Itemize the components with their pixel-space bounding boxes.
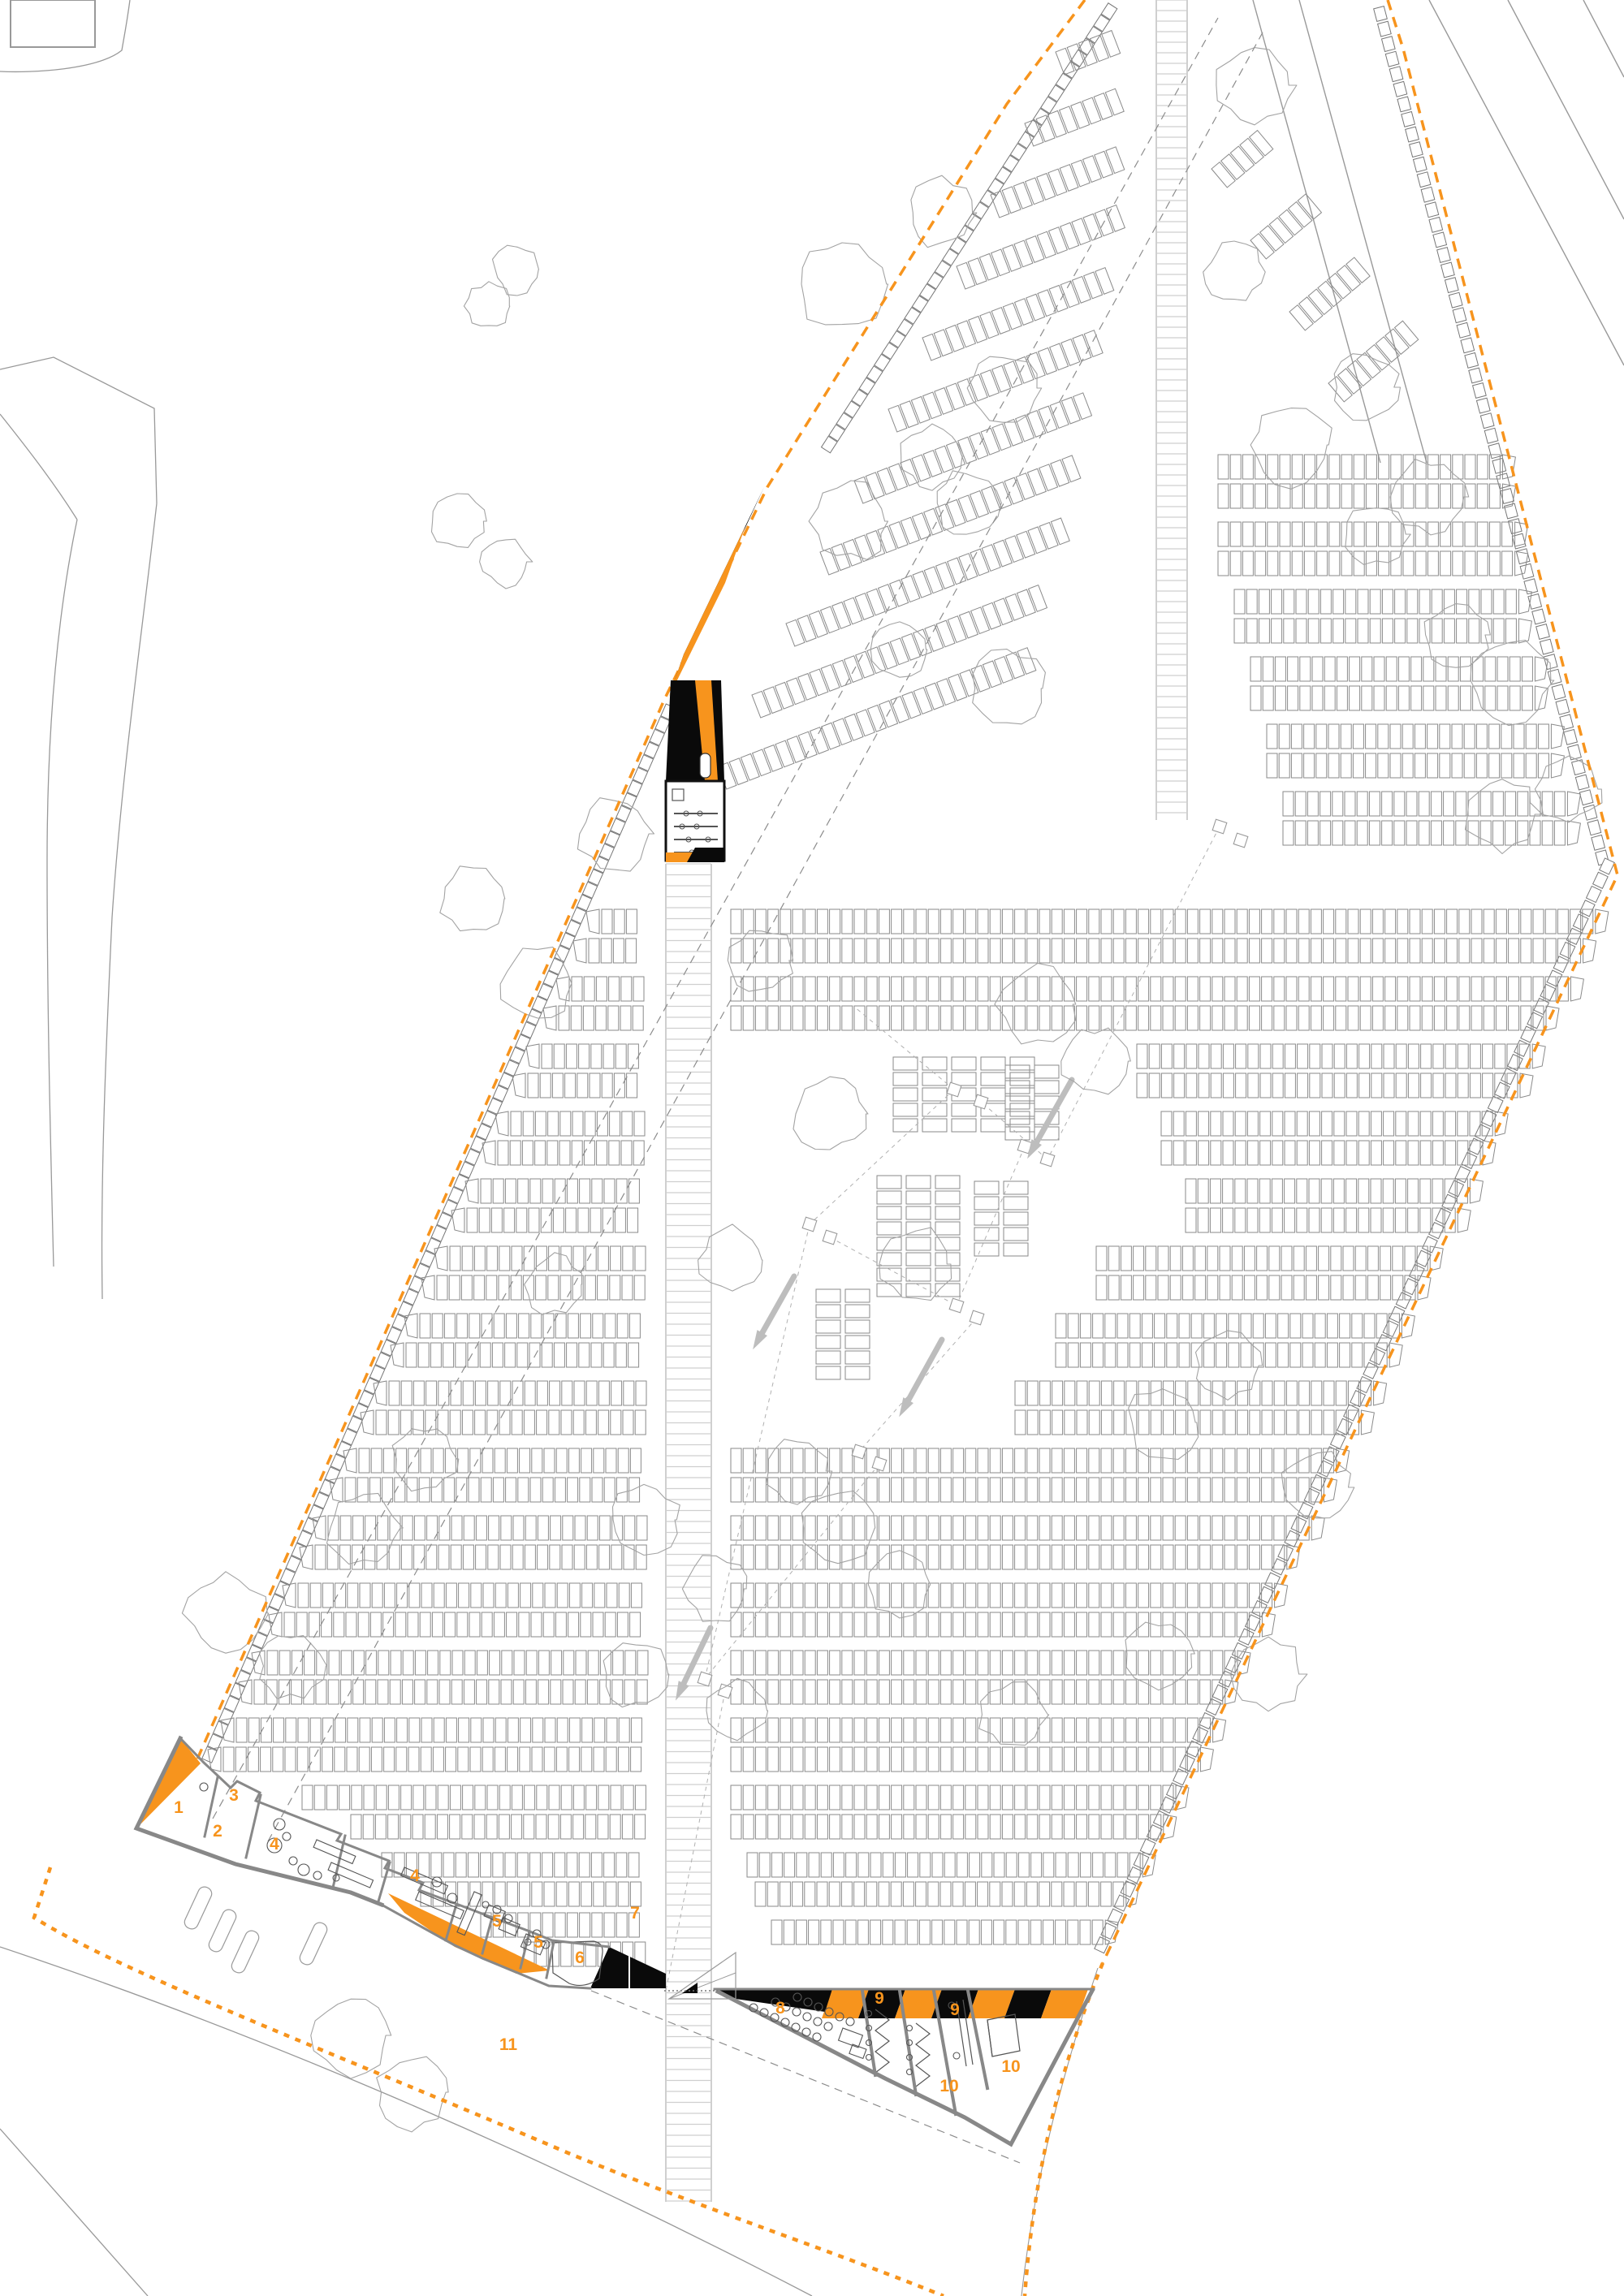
parking-stall [1397,1006,1408,1030]
parking-stall [890,580,909,606]
parking-stall [504,1208,515,1232]
parking-stall [1101,1785,1112,1810]
parking-stall [631,1718,641,1742]
parking-stall [1320,589,1331,614]
parking-stall [817,1651,827,1675]
parking-stall [830,1680,840,1704]
parking-stall [842,1612,853,1637]
parking-stall [1015,1448,1026,1473]
parking-stall [1138,1410,1149,1435]
parking-stall [1298,939,1309,963]
parking-stall [1151,1747,1161,1772]
parking-stall [528,1073,538,1098]
parking-stall [1415,753,1425,778]
parking-stall [1077,1680,1087,1704]
parking-stall [1311,1381,1322,1405]
parking-stall [463,1545,473,1569]
parking-stall [567,1343,577,1367]
parking-stall [1391,522,1402,546]
parking-stall [555,1478,565,1502]
edge-stall [1433,232,1447,248]
parking-stall [879,1516,889,1540]
parking-stall [965,909,976,934]
edge-stall [1593,872,1609,888]
parking-stall [598,1275,608,1300]
parking-stall [1272,1044,1283,1068]
parking-stall [525,1381,535,1405]
path-link [957,1146,1025,1306]
parking-stall [1249,1545,1259,1569]
parking-stall [603,1343,614,1367]
parking-stall [755,1747,766,1772]
parking-stall [1422,939,1432,963]
parking-stall [1017,648,1036,675]
parking-stall [1039,1815,1050,1839]
parking-stall [1250,657,1261,681]
parking-stall [1283,792,1294,816]
parking-stall [1522,657,1532,681]
tree [767,1439,832,1504]
road-curve-nw [0,0,130,71]
parking-stall [1533,909,1544,934]
parking-stall [1480,792,1491,816]
parking-stall [965,1747,976,1772]
parking-stall [982,1853,992,1877]
parking-stall [780,909,791,934]
parking-stall [1453,484,1463,508]
parking-stall [1129,1343,1140,1367]
tree [1345,508,1410,565]
parking-stall [1077,1516,1087,1540]
parking-stall [314,1785,325,1810]
parking-stall [957,321,976,347]
parking-stall [537,1785,547,1810]
parking-stall [775,682,793,709]
parking-stall [1175,1516,1186,1540]
parking-stall [920,1853,931,1877]
parking-stall [579,1853,590,1877]
parking-stall [1322,1044,1332,1068]
parking-stall [1027,977,1038,1001]
parking-stall [284,1612,295,1637]
parking-stall [916,1478,926,1502]
parking-stall [953,1815,964,1839]
parking-stall [1348,939,1358,963]
parking-stall [634,1275,645,1300]
parking-stall [1064,1651,1074,1675]
parking-stall [419,1853,430,1877]
parking-stall [1050,343,1069,370]
compact-stall [935,1206,960,1219]
parking-stall [340,1680,351,1704]
parking-stall [1005,536,1024,563]
parking-stall [469,1314,480,1338]
parking-stall [854,1006,865,1030]
parking-stall [1432,1179,1443,1203]
tree [793,1077,868,1150]
room-number-label: 10 [939,2077,958,2095]
parking-row [586,909,637,934]
parking-stall [1163,1583,1173,1608]
edge-stall [1568,744,1582,760]
parking-stall [498,1141,508,1165]
parking-stall [1237,1583,1247,1608]
parking-stall [346,1612,356,1637]
parking-stall [858,1853,869,1877]
parking-stall [414,1545,425,1569]
parking-stall [1545,939,1556,963]
parking-stall [610,1111,620,1136]
parking-stall [512,1545,523,1569]
parking-stall [805,1651,815,1675]
parking-stall [1334,1073,1345,1098]
tree [698,1224,762,1291]
parking-row [854,393,1092,503]
parking-stall [1274,1516,1285,1540]
parking-stall [809,1853,819,1877]
parking-stall [866,1882,877,1906]
parking-stall [1434,1006,1445,1030]
parking-stall [1224,1545,1235,1569]
compact-stall [877,1176,901,1189]
parking-stall [1076,1882,1086,1906]
parking-stall [1212,1381,1223,1405]
parking-stall [1089,939,1099,963]
parking-stall [1262,1448,1272,1473]
edge-stall [1410,142,1423,158]
parking-stall [1485,686,1496,710]
parking-stall [1212,939,1223,963]
parking-stall [598,1815,608,1839]
parking-row [731,1815,1177,1839]
parking-stall [1006,652,1025,679]
parking-stall [1003,245,1021,272]
compact-stall [952,1057,976,1070]
building-services-pavilion-furniture [907,2026,913,2031]
parking-stall [833,1920,844,1944]
parking-stall [616,1913,627,1937]
parking-stall [1207,1275,1218,1300]
parking-stall [1095,268,1114,295]
parking-stall [537,1381,547,1405]
parking-stall [1464,753,1475,778]
parking-stall [585,1275,595,1300]
parking-row [1137,1073,1533,1098]
parking-stall [1224,1478,1235,1502]
parking-stall [1052,977,1062,1001]
parking-stall [1470,1073,1480,1098]
parking-stall [1304,551,1315,576]
parking-stall [637,1680,647,1704]
parking-stall [1187,1478,1198,1502]
parking-stall [533,1583,543,1608]
parking-stall [953,1680,964,1704]
parking-row [269,1612,641,1637]
parking-row [1250,194,1321,259]
parking-stall [1320,792,1331,816]
parking-stall [1366,753,1376,778]
parking-stall [631,1583,641,1608]
parking-stall [1028,527,1047,554]
parking-stall [400,1815,411,1839]
tree [1390,460,1469,535]
edge-stall [1350,1391,1366,1407]
parking-stall [1027,1583,1038,1608]
parking-stall [551,1680,561,1704]
tree [432,494,487,547]
parking-stall [1138,1718,1149,1742]
parking-stall [833,1853,844,1877]
parking-stall [1436,686,1446,710]
parking-stall [1302,1314,1313,1338]
parking-stall [1274,939,1285,963]
compact-stall [1005,1096,1030,1109]
parking-stall [348,1583,358,1608]
parking-stall [928,1747,939,1772]
room-labels: 1234455678999101011 [174,1786,1021,2095]
parking-stall [345,1478,356,1502]
parking-stall [856,710,875,736]
parking-stall [1113,1006,1124,1030]
parking-stall [471,1718,482,1742]
parking-stall [1175,1006,1186,1030]
parking-stall [556,1882,567,1906]
parking-row [1283,792,1580,816]
parking-stall [1415,724,1425,749]
parking-stall [1433,1073,1444,1098]
parking-stall [555,1612,566,1637]
parking-stall [614,909,624,934]
parking-stall [1039,1545,1050,1569]
parking-stall [916,1516,926,1540]
parking-stall [1199,1044,1209,1068]
parking-stall [1310,1044,1320,1068]
parking-stall [1473,686,1484,710]
parking-stall [1269,1246,1280,1271]
parking-stall [901,460,919,486]
parking-stall [525,1680,536,1704]
parking-stall [1403,551,1414,576]
parking-stall [1444,792,1454,816]
parking-stall [1468,821,1479,845]
parking-stall [805,1815,815,1839]
parking-stall [1459,977,1470,1001]
parking-stall [1312,657,1323,681]
parking-stall [599,1516,610,1540]
parking-stall [1052,1381,1063,1405]
parking-stall [437,1815,447,1839]
parking-stall [1346,1141,1357,1165]
parking-stall [1101,977,1112,1001]
parking-stall [1336,909,1346,934]
parking-stall [1422,909,1432,934]
parking-stall [743,1612,754,1637]
parking-stall [1200,1583,1211,1608]
parking-stall [1385,329,1409,354]
parking-stall [1262,909,1272,934]
parking-stall [994,598,1013,625]
compact-stall [974,1228,999,1241]
parking-stall [439,1680,450,1704]
parking-stall [978,1747,988,1772]
edge-stall [1480,413,1494,429]
parking-stall [1138,1785,1149,1810]
parking-stall [1138,1448,1149,1473]
parking-stall [1366,484,1376,508]
parking-stall [635,1815,646,1839]
parking-stall [1015,1612,1026,1637]
parking-stall [1427,753,1438,778]
parking-stall [591,1343,602,1367]
parking-stall [805,939,815,963]
parking-stall [1272,589,1282,614]
compact-stall [906,1206,931,1219]
building-services-pavilion-furniture [849,2044,866,2058]
parking-stall [1187,977,1198,1001]
parking-stall [879,1583,889,1608]
parking-stall [805,1680,815,1704]
parking-stall [1186,1073,1197,1098]
parking-stall [1077,939,1087,963]
compact-stall [845,1366,870,1379]
parking-stall [273,1747,283,1772]
parking-stall [831,544,850,571]
parking-row [731,939,1596,963]
parking-stall [1369,821,1380,845]
parking-stall [1072,218,1091,245]
parking-stall [1280,522,1290,546]
compact-stall [952,1103,976,1116]
building-entrance-pavilion-wall [246,1795,261,1858]
parking-stall [1267,753,1277,778]
parking-stall [616,1179,627,1203]
parking-stall [1030,1920,1041,1944]
coach-stall [207,1907,239,1953]
compact-stall [935,1268,960,1281]
parking-stall [768,1651,779,1675]
parking-stall [1002,1680,1013,1704]
parking-stall [796,1920,806,1944]
parking-stall [248,1718,259,1742]
parking-stall [591,1044,602,1068]
parking-stall [904,1448,914,1473]
parking-row [731,1612,1275,1637]
parking-stall [450,1246,460,1271]
parking-stall [1175,1478,1186,1502]
parking-stall [916,1612,926,1637]
parking-stall [1200,1516,1211,1540]
parking-stall [529,1853,540,1877]
parking-stall [1492,821,1503,845]
parking-stall [1195,1275,1206,1300]
parking-stall [1080,1920,1091,1944]
parking-stall [1163,909,1173,934]
parking-stall [1151,1478,1161,1502]
parking-stall [520,1448,530,1473]
parking-stall [543,1612,554,1637]
parking-stall [581,1314,591,1338]
parking-stall [1406,821,1417,845]
parking-stall [1411,686,1422,710]
edge-stall [1425,202,1439,218]
parking-stall [495,1448,505,1473]
parking-stall [928,909,939,934]
parking-stall [1002,939,1013,963]
parking-stall [480,1343,490,1367]
parking-stall [1415,455,1426,479]
parking-stall [1015,1006,1026,1030]
parking-stall [261,1747,271,1772]
parking-stall [743,1516,754,1540]
parking-row [1267,724,1564,749]
parking-stall [577,1073,588,1098]
parking-stall [1158,1246,1168,1271]
parking-stall [1125,1516,1136,1540]
parking-stall [1052,1448,1062,1473]
parking-stall [994,1920,1004,1944]
parking-stall [854,1516,865,1540]
parking-stall [1279,209,1302,235]
building-entrance-pavilion-fill [590,1947,666,1988]
parking-stall [1039,1381,1050,1405]
parking-stall [928,1516,939,1540]
parking-stall [1039,977,1050,1001]
parking-stall [364,1785,374,1810]
parking-stall [477,1651,487,1675]
tree [901,424,964,490]
parking-stall [624,1680,635,1704]
building-entrance-pavilion-fill [136,1738,201,1828]
parking-stall [1260,1044,1271,1068]
parking-stall [854,1747,865,1772]
parking-stall [604,1853,615,1877]
parking-stall [1484,977,1494,1001]
parking-stall [1398,657,1409,681]
parking-stall [1211,1044,1221,1068]
compact-stall [1004,1181,1028,1194]
parking-stall [1421,1044,1432,1068]
parking-stall [817,1718,827,1742]
row-end-cap [1213,1718,1226,1742]
parking-stall [866,1747,877,1772]
parking-stall [605,1612,615,1637]
building-services-pavilion-furniture [846,2018,854,2026]
parking-stall [604,1179,615,1203]
parking-stall [438,1381,449,1405]
flow-arrow-head [676,1681,689,1700]
parking-stall [1236,1044,1246,1068]
parking-stall [1249,1516,1259,1540]
boundary-sliver [669,526,745,697]
parking-stall [879,1006,889,1030]
parking-stall [743,1680,754,1704]
parking-stall [507,1612,517,1637]
parking-stall [524,1815,534,1839]
parking-stall [1064,1583,1074,1608]
parking-stall [1355,1275,1366,1300]
parking-stall [383,1612,394,1637]
parking-stall [621,977,632,1001]
parking-stall [1372,1006,1383,1030]
parking-stall [1447,977,1458,1001]
parking-stall [611,1381,622,1405]
parking-stall [768,1006,779,1030]
parking-stall [784,1853,795,1877]
parking-stall [530,1478,541,1502]
parking-stall [572,977,582,1001]
parking-stall [599,1545,610,1569]
parking-stall [544,1448,555,1473]
